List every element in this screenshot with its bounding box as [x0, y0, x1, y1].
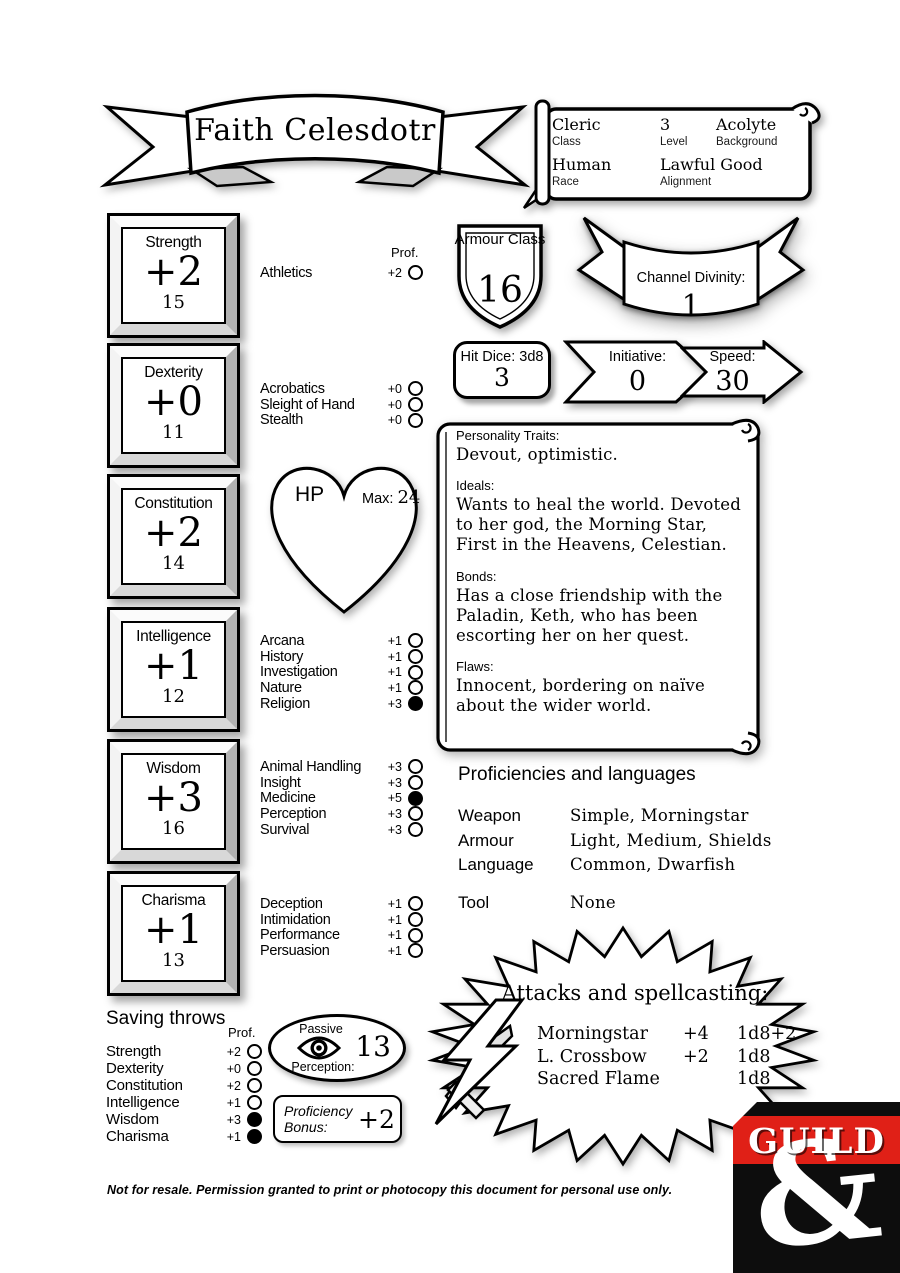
proficiency-row: Armour Light, Medium, Shields: [458, 831, 793, 851]
attack-name: L. Crossbow: [537, 1047, 683, 1070]
skill-name: Intimidation: [260, 912, 376, 928]
skill-name: History: [260, 649, 376, 665]
skill-name: Persuasion: [260, 943, 376, 959]
proficiency-circle: [408, 822, 423, 837]
proficiency-circle: [408, 896, 423, 911]
save-row: Dexterity +0: [106, 1060, 262, 1077]
skill-mod: +1: [376, 681, 402, 695]
character-sheet-page: { "banner": { "name": "Faith Celesdotr" …: [0, 0, 900, 1273]
passive-perception-value: 13: [355, 1030, 391, 1063]
proficiency-circle: [247, 1095, 262, 1110]
eye-icon: [297, 1035, 341, 1062]
skill-mod: +3: [376, 823, 402, 837]
skill-mod: +3: [376, 697, 402, 711]
ability-box-intelligence: Intelligence +1 12: [107, 607, 240, 732]
skill-row: Stealth +0: [260, 412, 423, 428]
class-label: Class: [552, 136, 581, 148]
ability-modifier: +2: [144, 513, 203, 554]
skill-mod: +2: [376, 266, 402, 280]
ability-box-dexterity: Dexterity +0 11: [107, 343, 240, 468]
skill-row: Animal Handling +3: [260, 759, 423, 775]
proficiency-circle: [247, 1044, 262, 1059]
proficiency-circle: [408, 943, 423, 958]
hit-dice-box: Hit Dice: 3d8 3: [453, 341, 551, 399]
skill-row: Sleight of Hand +0: [260, 397, 423, 413]
skill-row: Perception +3: [260, 806, 423, 822]
save-mod: +2: [215, 1079, 241, 1093]
proficiency-circle: [408, 381, 423, 396]
level-value: 3: [660, 115, 670, 134]
save-mod: +3: [215, 1113, 241, 1127]
level-label: Level: [660, 136, 688, 148]
footer-note: Not for resale. Permission granted to pr…: [107, 1183, 672, 1197]
ability-score: 15: [162, 293, 185, 313]
save-mod: +1: [215, 1096, 241, 1110]
skill-row: Performance +1: [260, 927, 423, 943]
skill-mod: +3: [376, 760, 402, 774]
proficiency-value: None: [570, 893, 616, 913]
proficiency-bonus-box: Proficiency Bonus: +2: [273, 1095, 402, 1143]
skill-name: Athletics: [260, 265, 376, 281]
skill-mod: +1: [376, 928, 402, 942]
save-mod: +0: [215, 1062, 241, 1076]
skill-row: Deception +1: [260, 896, 423, 912]
flaws-label: Flaws:: [456, 659, 752, 674]
skill-name: Acrobatics: [260, 381, 376, 397]
proficiency-row: Language Common, Dwarfish: [458, 855, 793, 875]
logo-corner-fold: [733, 1102, 757, 1126]
traits-label: Personality Traits:: [456, 428, 752, 443]
save-name: Charisma: [106, 1128, 215, 1145]
proficiency-circle: [247, 1129, 262, 1144]
skill-name: Perception: [260, 806, 376, 822]
guild-logo-text: GUILD: [733, 1121, 900, 1162]
proficiencies-title: Proficiencies and languages: [458, 764, 793, 786]
skill-name: Performance: [260, 927, 376, 943]
initiative-label: Initiative:: [590, 349, 685, 365]
skill-mod: +1: [376, 650, 402, 664]
skill-mod: +1: [376, 665, 402, 679]
attack-row: Morningstar +4 1d8+2: [537, 1024, 797, 1047]
attack-row: Sacred Flame 1d8: [537, 1069, 797, 1092]
hp-max-label: Max:: [362, 491, 393, 507]
skill-mod: +5: [376, 791, 402, 805]
race-value: Human: [552, 155, 611, 174]
bonds-text: Has a close friendship with the Paladin,…: [456, 586, 752, 646]
proficiency-label: Tool: [458, 893, 570, 913]
proficiency-value: Light, Medium, Shields: [570, 831, 772, 851]
ability-box-charisma: Charisma +1 13: [107, 871, 240, 996]
save-name: Wisdom: [106, 1111, 215, 1128]
skill-name: Deception: [260, 896, 376, 912]
proficiency-circle: [408, 413, 423, 428]
skill-name: Stealth: [260, 412, 376, 428]
attack-name: Morningstar: [537, 1024, 683, 1047]
skill-row: Acrobatics +0: [260, 381, 423, 397]
ability-modifier: +0: [144, 382, 203, 423]
proficiency-circle: [408, 928, 423, 943]
attack-row: L. Crossbow +2 1d8: [537, 1047, 797, 1070]
hp-heart: [256, 452, 434, 622]
hp-max-value: 24: [397, 487, 420, 508]
skill-row: Religion +3: [260, 696, 423, 712]
skill-name: Nature: [260, 680, 376, 696]
proficiency-bonus-label: Proficiency Bonus:: [284, 1103, 358, 1135]
initiative-value: 0: [590, 366, 685, 397]
save-mod: +2: [215, 1045, 241, 1059]
attacks-rows: Morningstar +4 1d8+2 L. Crossbow +2 1d8 …: [537, 1024, 797, 1092]
ability-box-strength: Strength +2 15: [107, 213, 240, 338]
skill-name: Animal Handling: [260, 759, 376, 775]
class-value: Cleric: [552, 115, 601, 134]
save-row: Constitution +2: [106, 1077, 262, 1094]
proficiency-circle: [408, 791, 423, 806]
channel-divinity-label: Channel Divinity:: [596, 270, 786, 286]
proficiency-value: Common, Dwarfish: [570, 855, 735, 875]
skill-mod: +1: [376, 897, 402, 911]
speed-label: Speed:: [690, 349, 775, 365]
attack-bonus: +4: [683, 1024, 737, 1047]
hp-label: HP: [295, 483, 324, 507]
save-name: Intelligence: [106, 1094, 215, 1111]
save-row: Wisdom +3: [106, 1111, 262, 1128]
ideals-label: Ideals:: [456, 478, 752, 493]
proficiency-circle: [408, 265, 423, 280]
skill-row: Athletics +2: [260, 265, 423, 281]
save-row: Charisma +1: [106, 1128, 262, 1145]
skill-mod: +3: [376, 807, 402, 821]
proficiency-circle: [408, 759, 423, 774]
save-row: Intelligence +1: [106, 1094, 262, 1111]
skills-prof-header: Prof.: [391, 245, 418, 260]
ability-modifier: +3: [144, 778, 203, 819]
save-name: Strength: [106, 1043, 215, 1060]
skill-row: Investigation +1: [260, 664, 423, 680]
ability-score: 14: [162, 554, 185, 574]
character-name: Faith Celesdotr: [150, 113, 480, 148]
flaws-text: Innocent, bordering on naïve about the w…: [456, 676, 752, 716]
proficiency-circle: [408, 775, 423, 790]
attack-damage: 1d8+2: [737, 1024, 796, 1047]
saving-throws-block: Saving throws Prof. Strength +2 Dexterit…: [106, 1008, 262, 1145]
ideals-text: Wants to heal the world. Devoted to her …: [456, 495, 752, 555]
skill-name: Survival: [260, 822, 376, 838]
attacks-title: Attacks and spellcasting:: [455, 981, 815, 1005]
channel-divinity-value: 1: [596, 288, 786, 322]
race-label: Race: [552, 176, 579, 188]
proficiency-label: Language: [458, 855, 570, 875]
personality-content: Personality Traits: Devout, optimistic. …: [456, 428, 752, 729]
skill-mod: +1: [376, 944, 402, 958]
proficiency-row: Weapon Simple, Morningstar: [458, 806, 793, 826]
hp-max: Max: 24: [362, 487, 420, 508]
skill-mod: +1: [376, 634, 402, 648]
alignment-label: Alignment: [660, 176, 711, 188]
attack-bonus: +2: [683, 1047, 737, 1070]
attack-bonus: [683, 1069, 737, 1092]
passive-perception-oval: Passive Perception: 13: [268, 1014, 406, 1082]
skill-row: Nature +1: [260, 680, 423, 696]
header-scroll: [522, 95, 822, 210]
skill-row: Insight +3: [260, 775, 423, 791]
proficiency-circle: [408, 397, 423, 412]
proficiency-circle: [247, 1112, 262, 1127]
attack-damage: 1d8: [737, 1069, 770, 1092]
proficiency-circle: [408, 912, 423, 927]
skill-mod: +3: [376, 776, 402, 790]
proficiency-circle: [408, 806, 423, 821]
wisdom-skills: Animal Handling +3 Insight +3 Medicine +…: [260, 759, 423, 837]
ability-modifier: +2: [144, 252, 203, 293]
charisma-skills: Deception +1 Intimidation +1 Performance…: [260, 896, 423, 959]
lightning-sword-icon: [430, 998, 540, 1128]
background-value: Acolyte: [716, 115, 776, 134]
proficiency-circle: [408, 665, 423, 680]
ability-box-constitution: Constitution +2 14: [107, 474, 240, 599]
skill-row: Persuasion +1: [260, 943, 423, 959]
skill-row: Survival +3: [260, 822, 423, 838]
skill-mod: +0: [376, 398, 402, 412]
proficiency-bonus-value: +2: [358, 1105, 395, 1134]
save-name: Constitution: [106, 1077, 215, 1094]
proficiencies-block: Proficiencies and languages Weapon Simpl…: [458, 764, 793, 918]
hit-dice-value: 3: [456, 365, 548, 390]
armour-class-value: 16: [453, 270, 547, 311]
proficiency-circle: [408, 680, 423, 695]
attack-name: Sacred Flame: [537, 1069, 683, 1092]
ability-modifier: +1: [144, 646, 203, 687]
ability-score: 13: [162, 951, 185, 971]
skill-row: Arcana +1: [260, 633, 423, 649]
skill-row: History +1: [260, 649, 423, 665]
speed-value: 30: [690, 366, 775, 397]
skill-row: Intimidation +1: [260, 912, 423, 928]
skill-name: Investigation: [260, 664, 376, 680]
ability-score: 12: [162, 687, 185, 707]
traits-text: Devout, optimistic.: [456, 445, 752, 465]
bonds-label: Bonds:: [456, 569, 752, 584]
attack-damage: 1d8: [737, 1047, 770, 1070]
ability-modifier: +1: [144, 910, 203, 951]
ability-box-wisdom: Wisdom +3 16: [107, 739, 240, 864]
dexterity-skills: Acrobatics +0 Sleight of Hand +0 Stealth…: [260, 381, 423, 428]
intelligence-skills: Arcana +1 History +1 Investigation +1 Na…: [260, 633, 423, 711]
save-name: Dexterity: [106, 1060, 215, 1077]
skill-row: Medicine +5: [260, 790, 423, 806]
skill-name: Insight: [260, 775, 376, 791]
skill-mod: +0: [376, 382, 402, 396]
proficiency-circle: [247, 1061, 262, 1076]
alignment-value: Lawful Good: [660, 155, 763, 174]
save-mod: +1: [215, 1130, 241, 1144]
skill-name: Arcana: [260, 633, 376, 649]
background-label: Background: [716, 136, 777, 148]
proficiency-circle: [408, 633, 423, 648]
skill-name: Sleight of Hand: [260, 397, 376, 413]
ability-score: 16: [162, 819, 185, 839]
proficiency-row: Tool None: [458, 893, 793, 913]
saves-prof-header: Prof.: [228, 1025, 255, 1040]
skill-mod: +0: [376, 413, 402, 427]
skill-name: Religion: [260, 696, 376, 712]
proficiency-circle: [408, 649, 423, 664]
proficiency-circle: [247, 1078, 262, 1093]
armour-class-label: Armour Class: [453, 231, 547, 248]
proficiency-value: Simple, Morningstar: [570, 806, 749, 826]
strength-skills: Athletics +2: [260, 265, 423, 281]
guild-logo: & GUILD: [733, 1102, 900, 1273]
proficiency-label: Armour: [458, 831, 570, 851]
save-row: Strength +2: [106, 1043, 262, 1060]
ability-score: 11: [162, 423, 185, 443]
skill-name: Medicine: [260, 790, 376, 806]
skill-mod: +1: [376, 913, 402, 927]
proficiency-label: Weapon: [458, 806, 570, 826]
proficiency-circle: [408, 696, 423, 711]
